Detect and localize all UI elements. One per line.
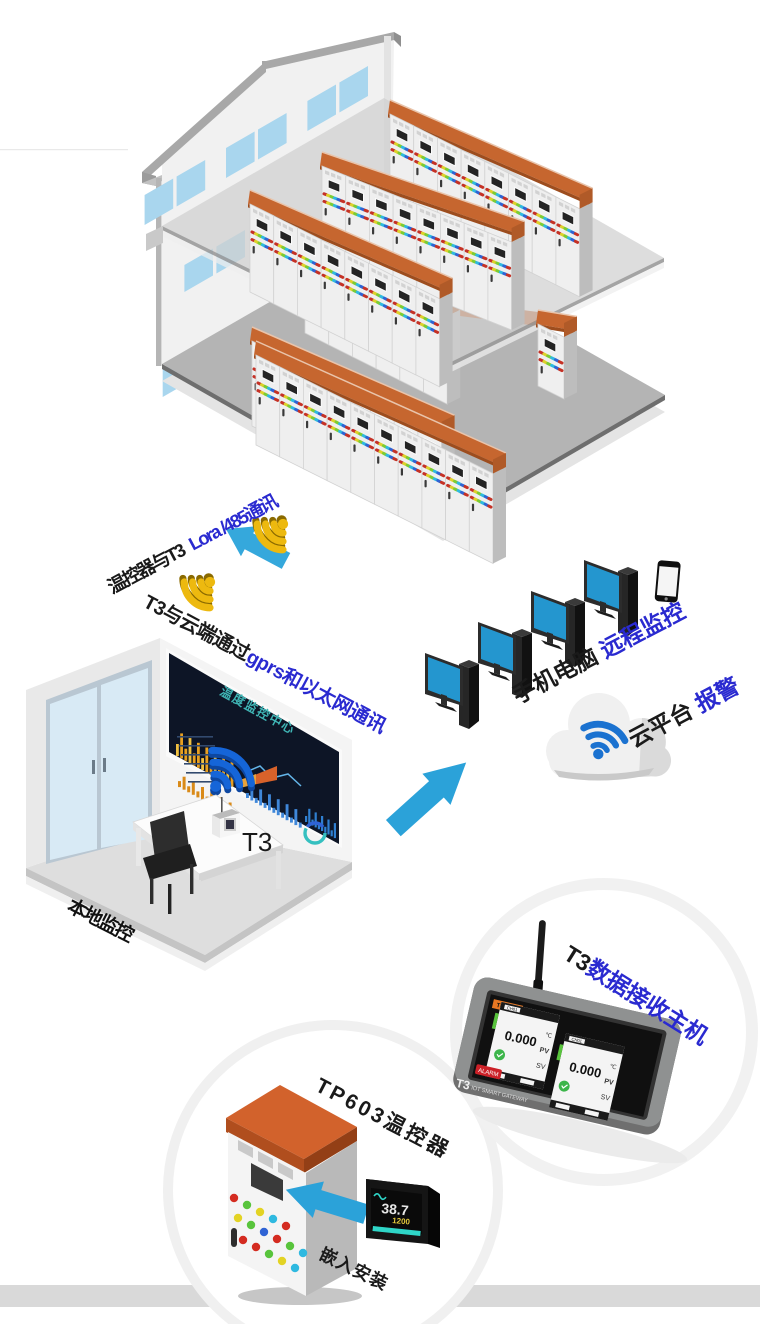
svg-text:T3: T3 (242, 827, 272, 857)
svg-text:1200: 1200 (392, 1216, 411, 1227)
